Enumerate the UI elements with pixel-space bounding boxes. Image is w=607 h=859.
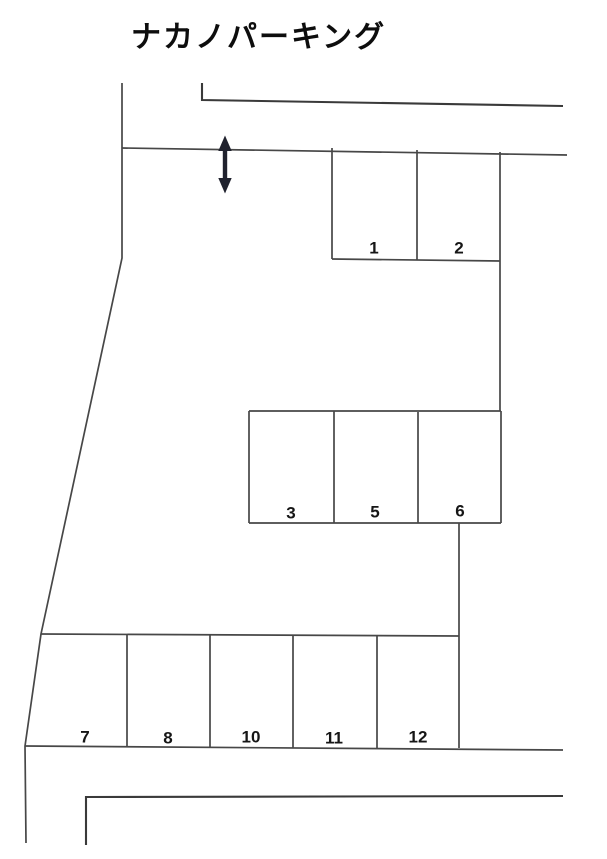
two-way-arrow-icon [218,136,231,194]
space-8-label: 8 [163,730,172,747]
space-3-label: 3 [286,505,295,522]
lower-row-bottom-edge [25,746,563,750]
space-7-label: 7 [80,729,89,746]
space-6-label: 6 [455,503,464,520]
space-5-label: 5 [370,504,379,521]
parking-lot-diagram [0,0,607,859]
left-boundary [25,83,122,843]
space-10-label: 10 [242,729,261,746]
bottom-road-edge [86,796,563,845]
top-road-edge [202,83,563,106]
space-12-label: 12 [409,729,428,746]
parking-map: ナカノパーキング [0,0,607,859]
upper-block-bottom-edge [332,259,500,261]
space-11-label: 11 [325,730,343,747]
lower-row-top-edge [41,634,459,636]
space-2-label: 2 [454,240,463,257]
space-1-label: 1 [369,240,378,257]
